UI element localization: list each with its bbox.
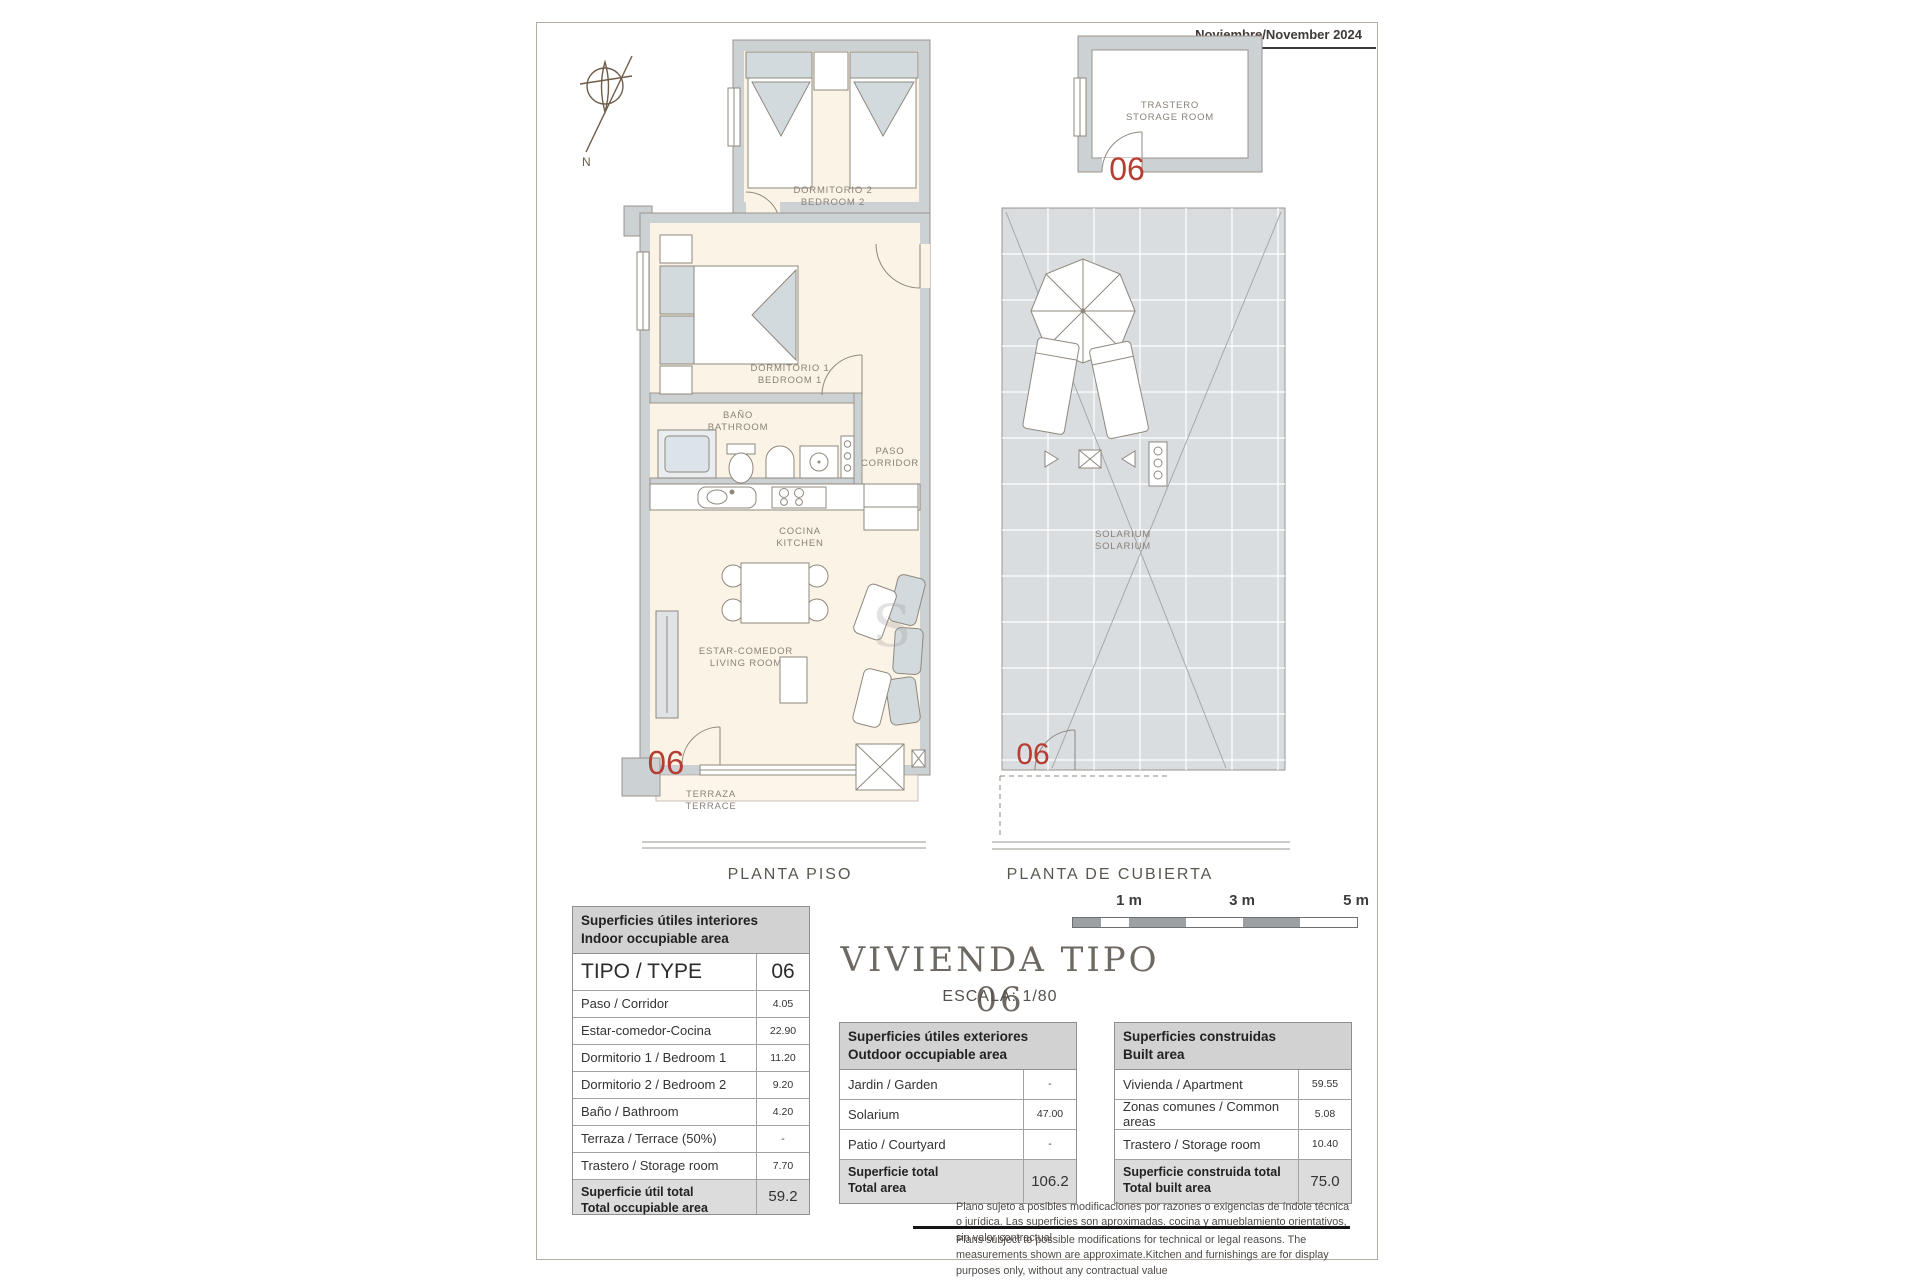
room-label-bano-es: BAÑO xyxy=(723,410,753,421)
scale-label-5m: 5 m xyxy=(1326,892,1386,909)
table-row: Estar-comedor-Cocina22.90 xyxy=(573,1018,809,1045)
room-label-dormitorio1-en: BEDROOM 1 xyxy=(758,375,822,386)
room-label-dormitorio2-es: DORMITORIO 2 xyxy=(793,185,872,196)
table-header: Superficies útiles interiores Indoor occ… xyxy=(573,907,809,954)
table-interior-areas: Superficies útiles interiores Indoor occ… xyxy=(572,906,810,1215)
scale-label-1m: 1 m xyxy=(1099,892,1159,909)
table-built-areas: Superficies construidas Built area Vivie… xyxy=(1114,1022,1352,1204)
bedroom2: DORMITORIO 2 BEDROOM 2 xyxy=(728,40,930,226)
table-row: Paso / Corridor4.05 xyxy=(573,991,809,1018)
scale-label-3m: 3 m xyxy=(1212,892,1272,909)
plan-sheet: Noviembre/November 2024 N DORMITORIO 2 B… xyxy=(0,0,1920,1280)
table-row: Zonas comunes / Common areas5.08 xyxy=(1115,1100,1351,1130)
room-label-dormitorio1-es: DORMITORIO 1 xyxy=(750,363,829,374)
table-row: Trastero / Storage room7.70 xyxy=(573,1153,809,1180)
room-label-estar-es: ESTAR-COMEDOR xyxy=(699,646,793,657)
unit-marker-solarium: 06 xyxy=(1016,738,1049,771)
scale-text: ESCALA: 1/80 xyxy=(840,988,1160,1006)
room-label-dormitorio2-en: BEDROOM 2 xyxy=(801,197,865,208)
table-exterior-areas: Superficies útiles exteriores Outdoor oc… xyxy=(839,1022,1077,1204)
watermark: S xyxy=(872,592,912,660)
room-label-estar-en: LIVING ROOM xyxy=(710,658,782,669)
caption-planta-cubierta: PLANTA DE CUBIERTA xyxy=(960,866,1260,884)
table-row: Vivienda / Apartment59.55 xyxy=(1115,1070,1351,1100)
room-label-trastero-es: TRASTERO xyxy=(1141,100,1199,111)
scale-bar: 1 m 3 m 5 m xyxy=(1072,892,1372,932)
table-row: Terraza / Terrace (50%)- xyxy=(573,1126,809,1153)
room-label-cocina-en: KITCHEN xyxy=(776,538,823,549)
unit-marker-trastero: 06 xyxy=(1109,151,1145,187)
scale-bar-track xyxy=(1072,917,1358,928)
room-label-trastero-en: STORAGE ROOM xyxy=(1126,112,1214,123)
table-header: Superficies útiles exteriores Outdoor oc… xyxy=(840,1023,1076,1070)
table-total-row: Superficie útil total Total occupiable a… xyxy=(573,1180,809,1214)
room-label-solarium-en: SOLARIUM xyxy=(1095,541,1151,552)
caption-planta-piso: PLANTA PISO xyxy=(640,866,940,884)
floor-plan-cubierta: TRASTERO STORAGE ROOM 06 xyxy=(990,30,1310,860)
table-header: Superficies construidas Built area xyxy=(1115,1023,1351,1070)
floor-plan-piso: DORMITORIO 2 BEDROOM 2 DORMITORIO xyxy=(560,30,980,860)
solarium: SOLARIUM SOLARIUM 06 xyxy=(992,208,1290,849)
table-row: Jardin / Garden- xyxy=(840,1070,1076,1100)
unit-marker-piso: 06 xyxy=(648,744,685,781)
room-label-bano-en: BATHROOM xyxy=(708,422,769,433)
table-row: Baño / Bathroom4.20 xyxy=(573,1099,809,1126)
storage-room: TRASTERO STORAGE ROOM 06 xyxy=(1074,36,1262,187)
room-label-paso-en: CORRIDOR xyxy=(861,458,919,469)
table-row: Dormitorio 1 / Bedroom 111.20 xyxy=(573,1045,809,1072)
table-total-row: Superficie construida total Total built … xyxy=(1115,1160,1351,1203)
table-row-type: TIPO / TYPE 06 xyxy=(573,954,809,991)
table-row: Trastero / Storage room10.40 xyxy=(1115,1130,1351,1160)
table-row: Patio / Courtyard- xyxy=(840,1130,1076,1160)
page-title: VIVIENDA TIPO 06 xyxy=(840,940,1160,1020)
room-label-terraza-es: TERRAZA xyxy=(686,789,736,800)
room-label-cocina-es: COCINA xyxy=(779,526,821,537)
room-label-solarium-es: SOLARIUM xyxy=(1095,529,1151,540)
legal-divider xyxy=(913,1226,1350,1229)
room-label-paso-es: PASO xyxy=(876,446,905,457)
room-label-terraza-en: TERRACE xyxy=(686,801,737,812)
table-row: Solarium47.00 xyxy=(840,1100,1076,1130)
table-total-row: Superficie total Total area 106.2 xyxy=(840,1160,1076,1203)
legal-note-en: Plans subject to possible modifications … xyxy=(956,1233,1354,1279)
table-row: Dormitorio 2 / Bedroom 29.20 xyxy=(573,1072,809,1099)
